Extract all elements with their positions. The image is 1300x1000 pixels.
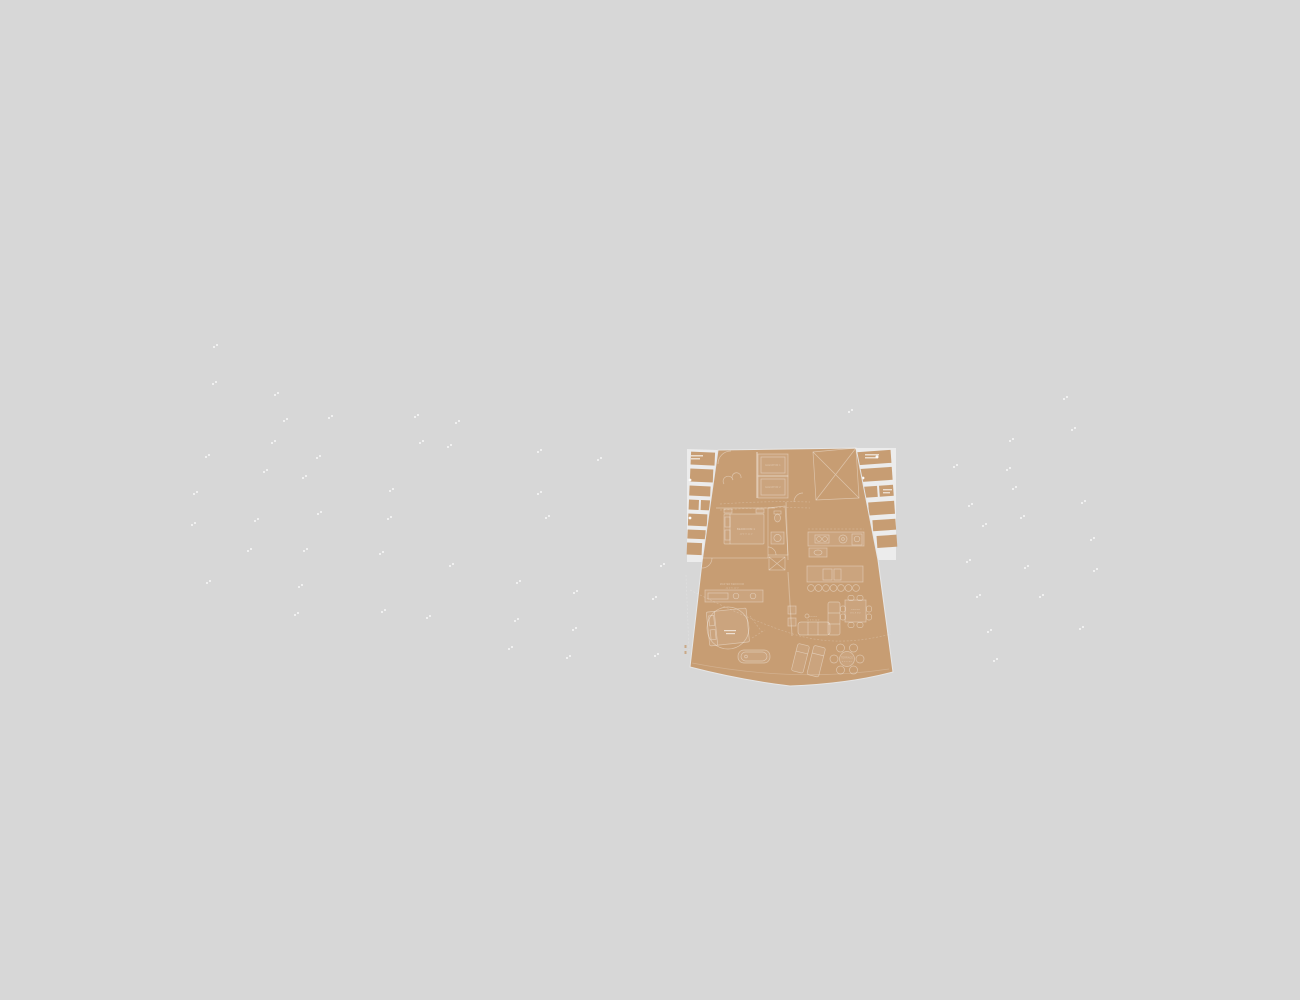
site-speck <box>387 518 389 520</box>
site-speck <box>389 490 391 492</box>
site-speck <box>283 420 285 422</box>
site-speck <box>982 525 984 527</box>
unit-floor-plan-svg: ELEVATOR 1 ELEVATOR 2 <box>680 440 900 690</box>
site-speck <box>597 459 599 461</box>
site-speck <box>205 456 207 458</box>
bed-icon <box>706 608 749 646</box>
site-speck <box>1012 488 1014 490</box>
site-speck <box>573 592 575 594</box>
site-speck <box>652 598 654 600</box>
site-speck <box>537 493 539 495</box>
site-speck <box>1071 429 1073 431</box>
site-speck <box>1093 570 1095 572</box>
bathtub <box>738 650 770 663</box>
site-speck <box>426 617 428 619</box>
highlighted-unit-floorplan[interactable]: ELEVATOR 1 ELEVATOR 2 <box>680 440 900 690</box>
terrace-label: TERRACE <box>841 657 853 660</box>
site-speck <box>1024 567 1026 569</box>
dining-dims: 8'0 X 8'0 <box>850 613 861 615</box>
site-speck <box>1039 596 1041 598</box>
vanity-icon <box>771 532 784 544</box>
master-bedroom-label: MASTER BEDROOM <box>720 583 744 586</box>
site-speck <box>298 586 300 588</box>
site-speck <box>271 442 273 444</box>
toilet-icon <box>775 514 781 522</box>
site-speck <box>545 517 547 519</box>
site-speck <box>316 457 318 459</box>
site-speck <box>419 442 421 444</box>
site-speck <box>1006 469 1008 471</box>
site-speck <box>294 614 296 616</box>
site-speck <box>263 471 265 473</box>
bedroom-1-label: BEDROOM 1 <box>737 527 755 531</box>
site-speck <box>976 596 978 598</box>
site-speck <box>1009 440 1011 442</box>
side-table-icon <box>788 618 796 626</box>
master-bedroom-dims: 12'5 X 13'0 <box>726 588 740 590</box>
site-speck <box>966 561 968 563</box>
site-speck <box>660 565 662 567</box>
sofa-icon <box>798 622 830 635</box>
site-speck <box>968 505 970 507</box>
site-speck <box>447 446 449 448</box>
site-speck <box>193 493 195 495</box>
site-speck <box>414 416 416 418</box>
site-speck <box>449 565 451 567</box>
sparkle-icon <box>689 517 692 520</box>
site-speck <box>213 346 215 348</box>
side-table-icon <box>788 606 796 614</box>
site-speck <box>993 660 995 662</box>
site-speck <box>572 629 574 631</box>
site-speck <box>537 451 539 453</box>
nightstand-icon <box>724 509 732 513</box>
site-speck <box>1081 502 1083 504</box>
site-speck <box>514 620 516 622</box>
site-speck <box>455 422 457 424</box>
site-speck <box>212 383 214 385</box>
site-speck <box>516 582 518 584</box>
dining-label: DINING <box>851 609 860 611</box>
site-speck <box>654 655 656 657</box>
dresser-icon <box>705 590 763 602</box>
living-dims: 11'0 X 12'5 <box>807 620 820 622</box>
site-speck <box>206 582 208 584</box>
bedroom-1-dims: 10'5 X 11'0 <box>740 534 753 536</box>
elevator-1-label: ELEVATOR 1 <box>765 464 781 467</box>
site-speck <box>848 411 850 413</box>
site-plan-canvas: ELEVATOR 1 ELEVATOR 2 <box>0 0 1300 1000</box>
dining-table-icon <box>845 600 866 622</box>
site-speck <box>254 520 256 522</box>
site-speck <box>328 417 330 419</box>
elevator-core: ELEVATOR 1 ELEVATOR 2 <box>757 452 788 498</box>
site-speck <box>302 477 304 479</box>
site-speck <box>247 550 249 552</box>
site-speck <box>1063 398 1065 400</box>
site-speck <box>381 611 383 613</box>
site-speck <box>987 631 989 633</box>
site-speck <box>1020 517 1022 519</box>
site-speck <box>953 466 955 468</box>
site-speck <box>379 553 381 555</box>
living-label: LIVING <box>809 616 817 618</box>
site-speck <box>1079 628 1081 630</box>
site-speck <box>317 513 319 515</box>
sparkle-icon <box>689 479 692 482</box>
nightstand-icon <box>756 509 764 513</box>
site-speck <box>1090 539 1092 541</box>
site-speck <box>566 657 568 659</box>
sparkle-icon <box>876 456 879 459</box>
site-speck <box>508 648 510 650</box>
elevator-2-label: ELEVATOR 2 <box>765 486 781 489</box>
terrace-dims: 9'0 X 9'0 <box>842 661 853 663</box>
site-speck <box>274 394 276 396</box>
site-speck <box>303 550 305 552</box>
site-speck <box>191 524 193 526</box>
